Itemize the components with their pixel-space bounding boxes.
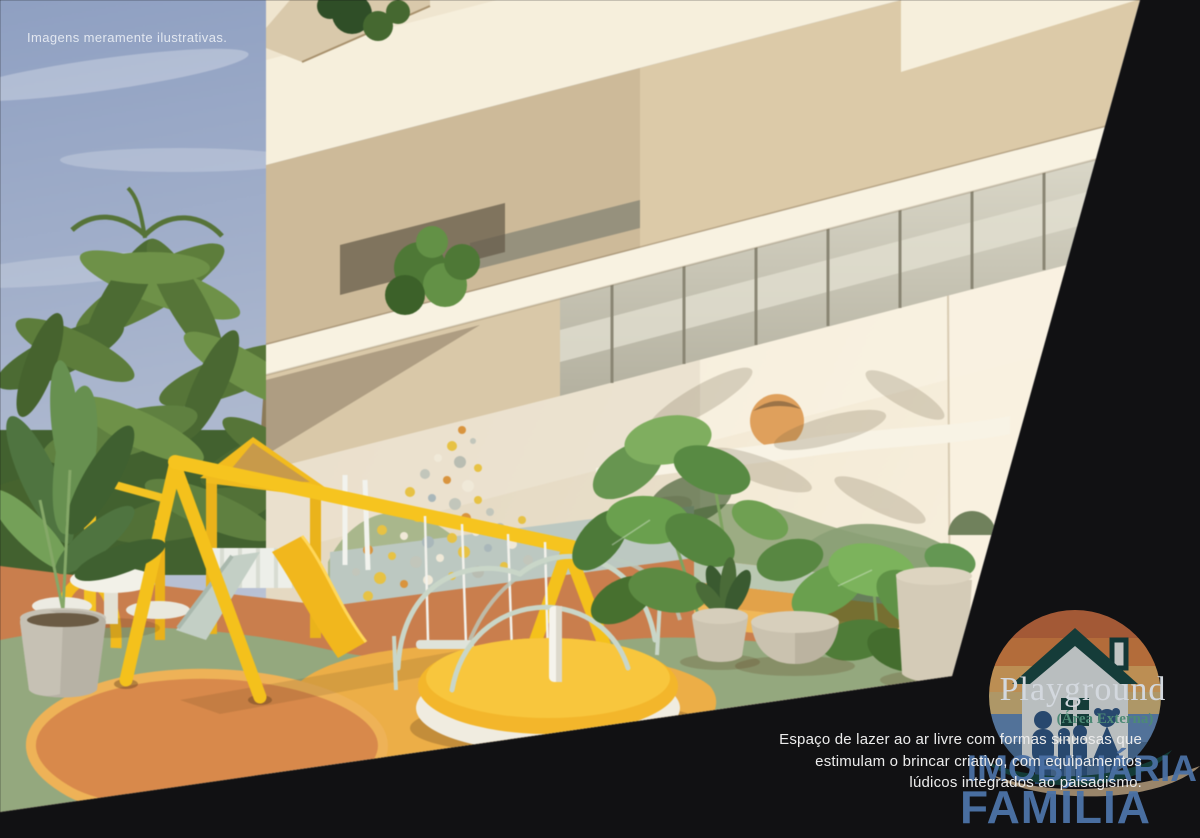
description-line: Espaço de lazer ao ar livre com formas s… [602,729,1142,751]
description-line: estimulam o brincar criativo, com equipa… [602,751,1142,773]
marketing-render-page: Imagens meramente ilustrativas. Playgrou… [0,0,1200,838]
page-title: Playground [963,671,1200,709]
description-text: Espaço de lazer ao ar livre com formas s… [602,729,1142,794]
disclaimer-note: Imagens meramente ilustrativas. [27,30,227,45]
description-line: lúdicos integrados ao paisagismo. [602,772,1142,794]
page-subtitle: (Área Externa) [985,711,1200,728]
